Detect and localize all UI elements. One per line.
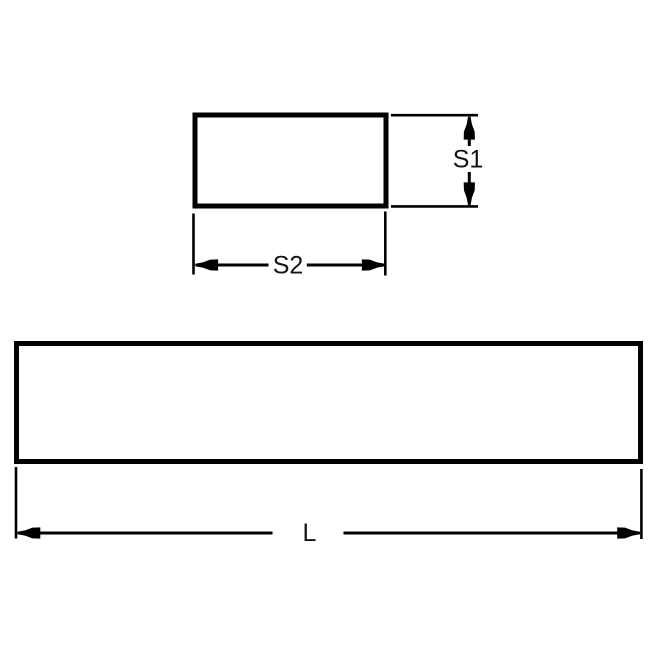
svg-text:S1: S1	[453, 146, 484, 174]
svg-text:L: L	[303, 519, 317, 547]
svg-text:S2: S2	[273, 252, 304, 280]
